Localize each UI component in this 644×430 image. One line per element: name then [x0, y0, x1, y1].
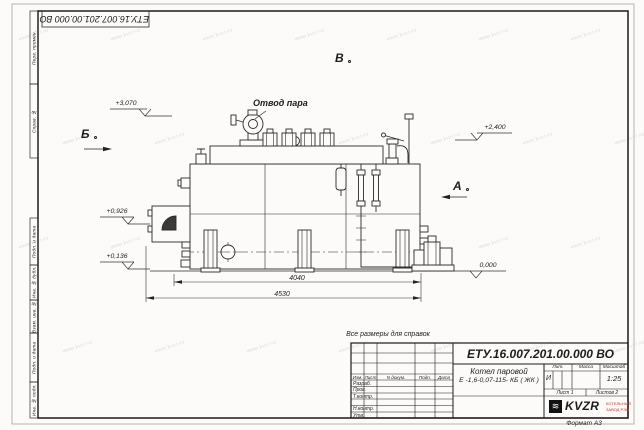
- view-mark-v: [348, 60, 351, 63]
- company-name-line2: ЗАВОД РЭП: [606, 407, 629, 412]
- tb-lit-label: Лит.: [544, 365, 572, 370]
- drawing-sheet: www.kvzr.ruwww.kvzr.ruwww.kvzr.ruwww.kvz…: [0, 0, 644, 430]
- margin-inv-podl: Инв. № подл.: [30, 382, 38, 418]
- steam-outlet-label: Отвод пара: [253, 98, 308, 108]
- boiler-side-view: [148, 110, 470, 272]
- margin-podp-data-2: Подп. и дата: [30, 333, 38, 382]
- burner-door: [148, 206, 190, 242]
- tb-row-razrab: Разраб.: [353, 381, 371, 387]
- tb-row-prov: Пров.: [353, 387, 366, 393]
- tb-sheets: Листов 2: [586, 390, 628, 396]
- tb-masshtab-label: Масштаб: [600, 365, 628, 370]
- tb-row-nkontr: Н.контр.: [353, 406, 374, 412]
- dim-4040: 4040: [277, 275, 317, 282]
- titleblock-doc-number: ЕТУ.16.007.201.00.000 ВО: [455, 345, 626, 363]
- safety-valve: [382, 133, 409, 164]
- tb-scale-value: 1:25: [600, 374, 628, 383]
- product-name-line1: Котел паровой: [455, 367, 543, 376]
- dim-4530: 4530: [262, 291, 302, 298]
- view-mark-b: [94, 136, 97, 139]
- right-fittings: [420, 226, 428, 244]
- margin-perv-primen: Перв. примен.: [30, 11, 38, 84]
- view-label-a: А: [453, 179, 462, 193]
- company-name-line1: КОТЕЛЬНЫЙ: [606, 401, 631, 406]
- tb-header-podp: Подп.: [415, 375, 435, 380]
- elevation-2400: +2,400: [477, 124, 513, 131]
- tb-massa-label: Масса: [572, 365, 600, 370]
- steam-drum: [210, 146, 383, 164]
- vent-pipe: [405, 114, 413, 164]
- view-label-v: В: [335, 51, 344, 65]
- corner-stamp-number: ЕТУ.16.007.201.00.000 ВО: [42, 11, 149, 27]
- reference-note: Все размеры для справок: [336, 331, 440, 338]
- tb-lit-value: И: [544, 375, 553, 382]
- tb-row-tkontr: Т.контр.: [353, 394, 373, 400]
- margin-podp-data-1: Подп. и дата: [30, 218, 38, 265]
- elevation-0926: +0,926: [99, 208, 135, 215]
- water-gauge-2: [372, 164, 380, 212]
- tb-header-ndokum: N докум.: [377, 375, 415, 380]
- tb-sheet: Лист 1: [544, 390, 586, 396]
- product-name-line2: Е -1,6-0,07-115- КБ ( ЖК ): [454, 377, 544, 384]
- margin-sprav-no: Справ. №: [30, 84, 38, 158]
- body-top-fitting: [196, 149, 206, 164]
- tb-row-utv: Утв.: [353, 413, 364, 419]
- elevation-0136: +0,136: [99, 253, 135, 260]
- format-label: Формат А3: [540, 420, 628, 427]
- margin-inv-dubl: Инв. № дубл.: [30, 265, 38, 300]
- kvzr-logo-text: KVZR: [565, 399, 599, 413]
- tb-header-list: Лист: [364, 375, 377, 380]
- elevation-3070: +3,070: [108, 100, 144, 107]
- kvzr-logo-icon: ≋: [549, 400, 562, 413]
- margin-vzam-inv: Взам. инв. №: [30, 300, 38, 333]
- tb-header-data: Дата: [435, 375, 453, 380]
- steam-valve: [231, 110, 266, 146]
- elevation-0000: 0,000: [470, 262, 506, 269]
- tb-header-izm: Изм.: [351, 375, 364, 380]
- view-label-b: Б: [81, 127, 90, 141]
- view-mark-a: [466, 188, 469, 191]
